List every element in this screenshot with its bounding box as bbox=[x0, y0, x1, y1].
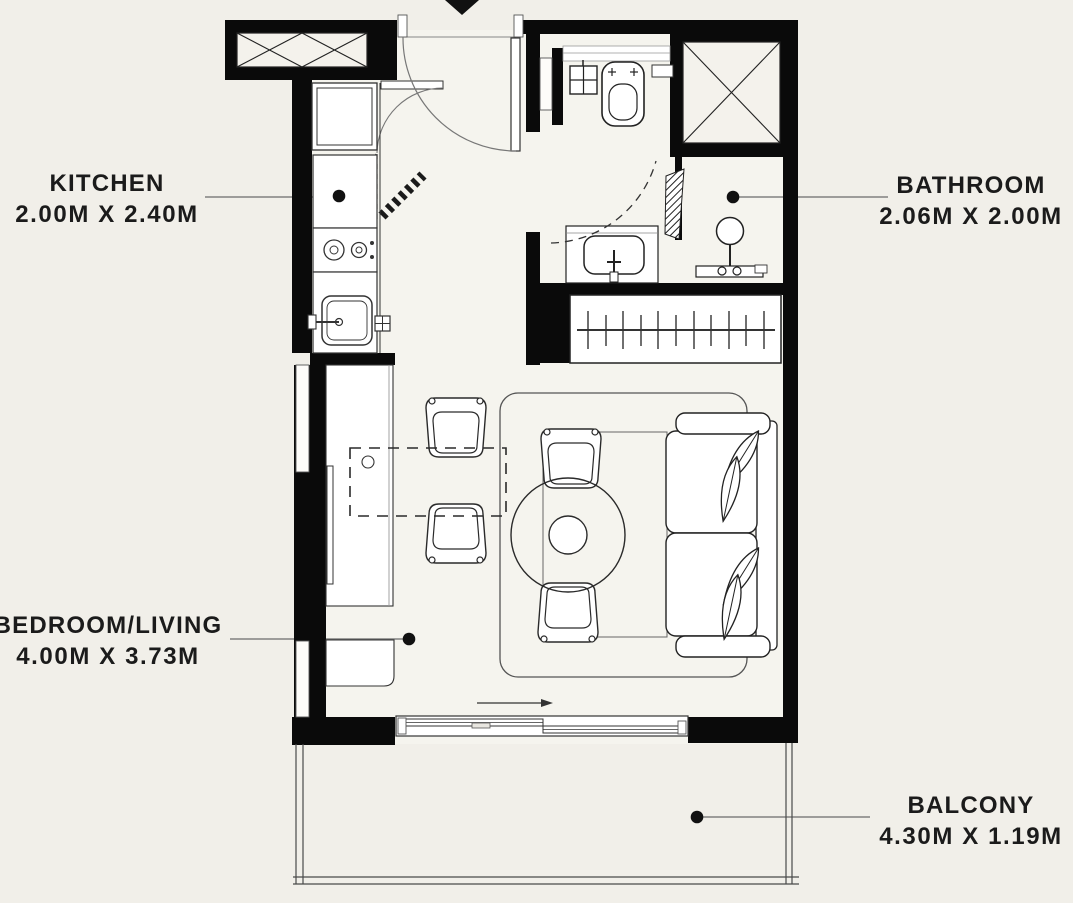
bathroom-label: BATHROOM 2.06M X 2.00M bbox=[879, 170, 1063, 232]
chair-icon bbox=[541, 429, 601, 488]
bathroom-counter-strip bbox=[563, 46, 670, 61]
sliding-door-cap-left bbox=[398, 718, 406, 734]
balcony-name: BALCONY bbox=[879, 790, 1063, 821]
kitchen-leader-dot bbox=[333, 190, 346, 203]
window-left-upper bbox=[296, 365, 309, 472]
kitchen-label: KITCHEN 2.00M X 2.40M bbox=[15, 168, 199, 230]
stove-icon bbox=[313, 228, 377, 272]
floor-plan-page: KITCHEN 2.00M X 2.40M BATHROOM 2.06M X 2… bbox=[0, 0, 1073, 903]
balcony-label: BALCONY 4.30M X 1.19M bbox=[879, 790, 1063, 852]
sofa-armrest-top bbox=[676, 413, 770, 434]
wall-bottom-left bbox=[292, 717, 395, 745]
balcony-railing-icon bbox=[293, 743, 799, 884]
bedroom-leader-dot bbox=[403, 633, 416, 646]
kitchen-sink-icon bbox=[322, 296, 372, 345]
sliding-door-cap-right bbox=[678, 721, 686, 734]
round-table-center bbox=[549, 516, 587, 554]
entry-door-leaf bbox=[511, 38, 520, 151]
refrigerator-inner bbox=[317, 88, 372, 145]
wardrobe-icon bbox=[570, 295, 781, 363]
shower-handle-1 bbox=[718, 267, 726, 275]
bedroom-living-label: BEDROOM/LIVING 4.00M X 3.73M bbox=[0, 610, 222, 672]
wall-bottom-right bbox=[688, 717, 798, 743]
entry-jamb-left bbox=[398, 15, 407, 37]
kitchen-dimensions: 2.00M X 2.40M bbox=[15, 199, 199, 230]
chair-icon bbox=[426, 504, 486, 563]
wall-kitchen-left bbox=[292, 80, 312, 353]
window-left-lower bbox=[296, 641, 309, 717]
wall-panel bbox=[327, 466, 333, 584]
sofa-armrest-bottom bbox=[676, 636, 770, 657]
wall-bathroom-pocket bbox=[552, 48, 563, 125]
faucet-handle bbox=[308, 315, 316, 329]
entry-jamb-right bbox=[514, 15, 523, 37]
low-cabinet bbox=[326, 640, 394, 686]
shower-fixture bbox=[755, 265, 767, 273]
bathroom-dimensions: 2.06M X 2.00M bbox=[879, 201, 1063, 232]
basin-faucet-base bbox=[610, 272, 618, 282]
desk-counter-icon bbox=[326, 365, 393, 606]
shower-bar bbox=[696, 266, 763, 277]
wall-top bbox=[520, 20, 798, 34]
bathroom-name: BATHROOM bbox=[879, 170, 1063, 201]
cup bbox=[362, 456, 374, 468]
shower-handle-2 bbox=[733, 267, 741, 275]
entry-arrow-icon bbox=[445, 0, 479, 15]
vent-box bbox=[652, 65, 673, 77]
stove-knob-1 bbox=[370, 241, 374, 245]
wall-bathroom-bottom bbox=[540, 283, 798, 295]
shower-icon bbox=[717, 218, 744, 245]
floor-plan-drawing bbox=[0, 0, 1073, 903]
balcony-dimensions: 4.30M X 1.19M bbox=[879, 821, 1063, 852]
wall-kitchen-bottom bbox=[310, 353, 395, 365]
bathroom-leader-dot bbox=[727, 191, 740, 204]
duct-box bbox=[237, 33, 367, 67]
sliding-door-handle bbox=[472, 723, 490, 728]
wall-bathroom-west-lower bbox=[526, 232, 540, 365]
wall-bathroom-west-upper bbox=[526, 20, 540, 132]
sofa-back bbox=[756, 421, 777, 650]
door-pocket-niche bbox=[540, 58, 552, 110]
bedroom-living-name: BEDROOM/LIVING bbox=[0, 610, 222, 641]
kitchen-worktop bbox=[313, 155, 377, 228]
kitchen-name: KITCHEN bbox=[15, 168, 199, 199]
bedroom-living-dimensions: 4.00M X 3.73M bbox=[0, 641, 222, 672]
stove-knob-2 bbox=[370, 255, 374, 259]
sofa-icon bbox=[666, 413, 777, 657]
balcony-leader-dot bbox=[691, 811, 704, 824]
